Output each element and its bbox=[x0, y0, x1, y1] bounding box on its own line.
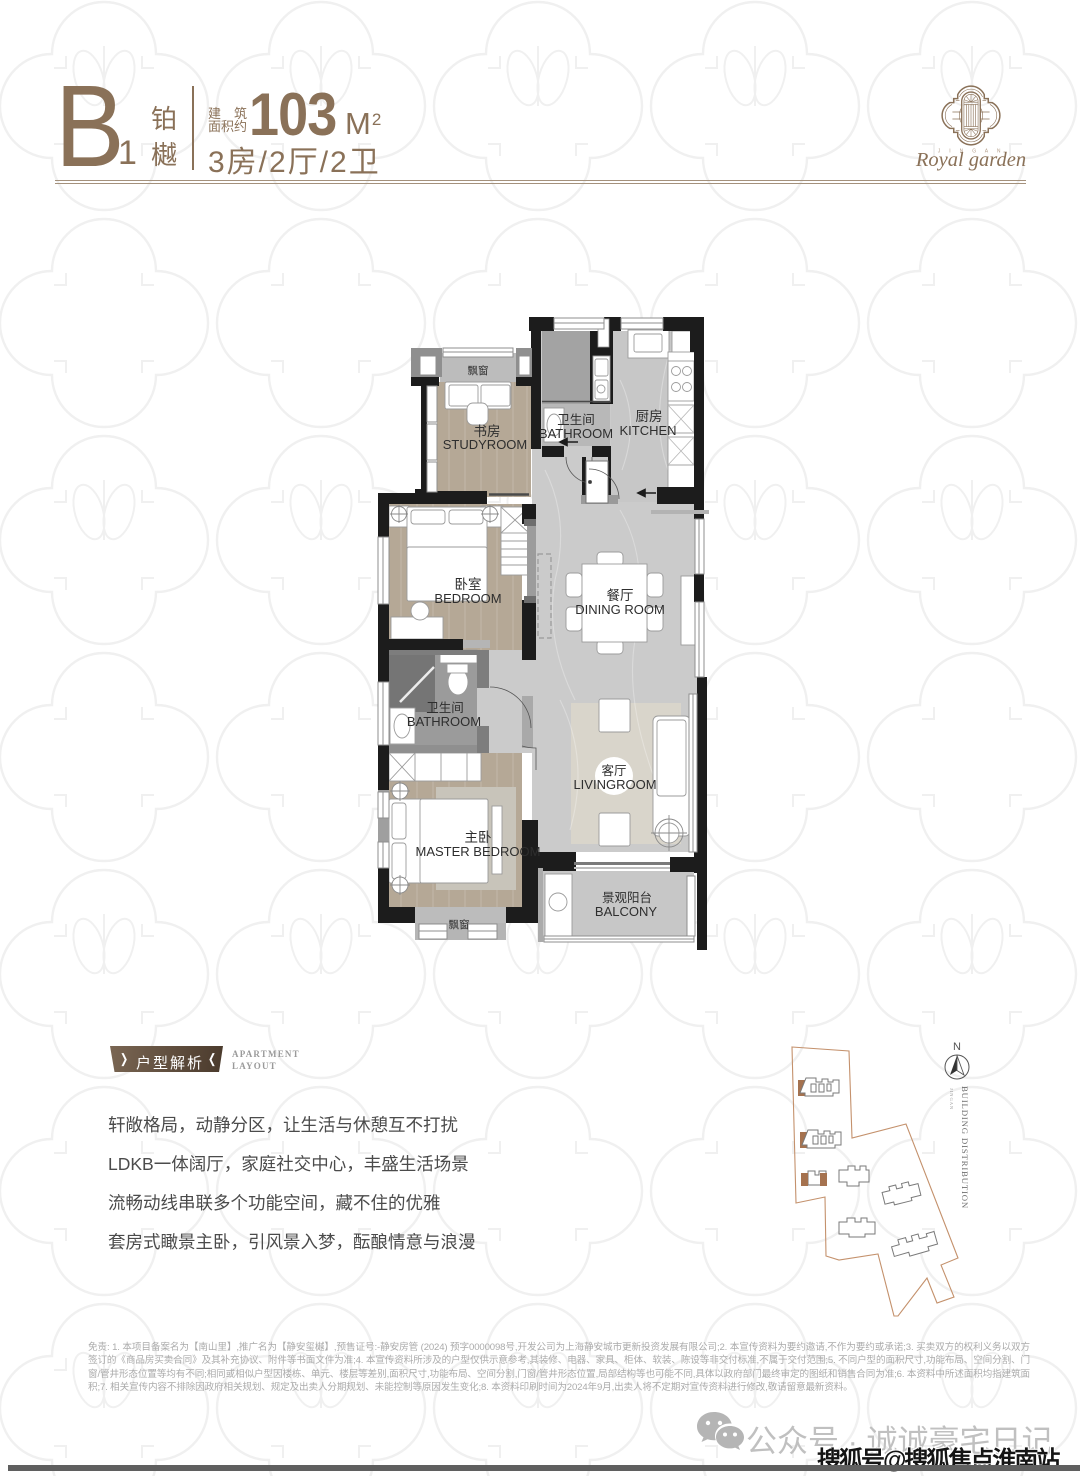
svg-text:卧室: 卧室 bbox=[455, 576, 482, 592]
svg-text:MASTER BEDROOM: MASTER BEDROOM bbox=[416, 844, 541, 859]
svg-text:飘窗: 飘窗 bbox=[468, 364, 489, 377]
svg-text:客厅: 客厅 bbox=[601, 763, 626, 778]
svg-text:卫生间: 卫生间 bbox=[426, 701, 464, 715]
svg-text:Royal garden: Royal garden bbox=[915, 149, 1026, 171]
svg-text:LIVINGROOM: LIVINGROOM bbox=[573, 777, 656, 792]
svg-text:BATHROOM: BATHROOM bbox=[539, 426, 613, 441]
svg-text:厨房: 厨房 bbox=[636, 409, 663, 424]
svg-text:BUILDING DISTRIBUTION: BUILDING DISTRIBUTION bbox=[960, 1086, 970, 1209]
svg-text:BALCONY: BALCONY bbox=[595, 904, 657, 919]
svg-text:主卧: 主卧 bbox=[465, 830, 492, 845]
svg-text:KITCHEN: KITCHEN bbox=[619, 423, 676, 438]
svg-text:BATHROOM: BATHROOM bbox=[407, 714, 481, 729]
svg-text:餐厅: 餐厅 bbox=[607, 588, 634, 603]
svg-text:DINING ROOM: DINING ROOM bbox=[575, 602, 665, 617]
svg-text:STUDYROOM: STUDYROOM bbox=[443, 437, 528, 452]
svg-text:卫生间: 卫生间 bbox=[557, 413, 595, 427]
svg-text:JINGAN: JINGAN bbox=[949, 1088, 954, 1110]
svg-text:景观阳台: 景观阳台 bbox=[602, 890, 652, 905]
svg-text:飘窗: 飘窗 bbox=[449, 918, 470, 931]
svg-text:BEDROOM: BEDROOM bbox=[434, 591, 501, 606]
svg-text:N: N bbox=[953, 1041, 961, 1053]
